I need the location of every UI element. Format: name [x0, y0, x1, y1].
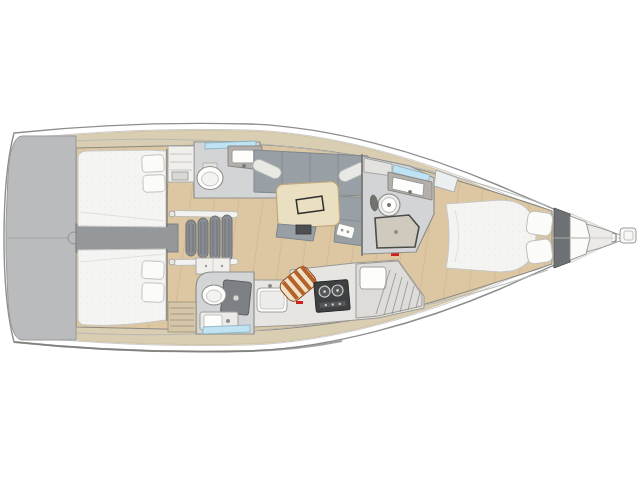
stair-rung: [210, 216, 220, 260]
hull-window: [203, 325, 250, 334]
galley-sink-basin: [260, 291, 284, 309]
slatted-bench: [168, 302, 196, 332]
galley-second-sink: [360, 267, 386, 289]
stair-knob-top: [169, 211, 175, 217]
pillow: [142, 283, 165, 303]
galley-faucet: [268, 284, 272, 288]
pillow: [526, 210, 554, 236]
toilet-drain: [387, 203, 391, 207]
wardrobe-shelves: [168, 146, 194, 182]
sink-basin: [232, 150, 254, 163]
salon-table: [276, 181, 340, 228]
engine-compartment: [76, 224, 178, 252]
shower-control: [233, 295, 240, 302]
island-berth-mattress: [446, 200, 536, 272]
port-aft-cabin: [78, 149, 167, 227]
swim-platform: [6, 136, 80, 340]
mast-step: [296, 225, 311, 234]
faucet: [408, 190, 412, 194]
stair-rung: [198, 218, 208, 258]
stair-rung: [222, 215, 232, 261]
pillow: [142, 154, 165, 172]
bowsprit-tip: [620, 228, 636, 243]
toilet-seat: [207, 290, 222, 302]
faucet: [226, 319, 230, 323]
yacht-floor-plan: [0, 0, 640, 480]
sink-basin: [204, 315, 222, 327]
starboard-aft-cabin: [78, 249, 167, 325]
toilet-seat: [202, 172, 219, 186]
bow: [540, 208, 636, 268]
stair-knob-bottom: [169, 259, 175, 265]
vent-grille: [172, 172, 188, 180]
red-label: [296, 301, 303, 304]
faucet: [242, 164, 246, 168]
stove: [314, 280, 350, 313]
pillow: [525, 238, 553, 264]
floor-plan-canvas: [0, 0, 640, 480]
stair-rung: [186, 220, 196, 256]
shower-drain: [394, 230, 398, 234]
pillow: [142, 260, 165, 279]
pillow: [143, 175, 166, 193]
